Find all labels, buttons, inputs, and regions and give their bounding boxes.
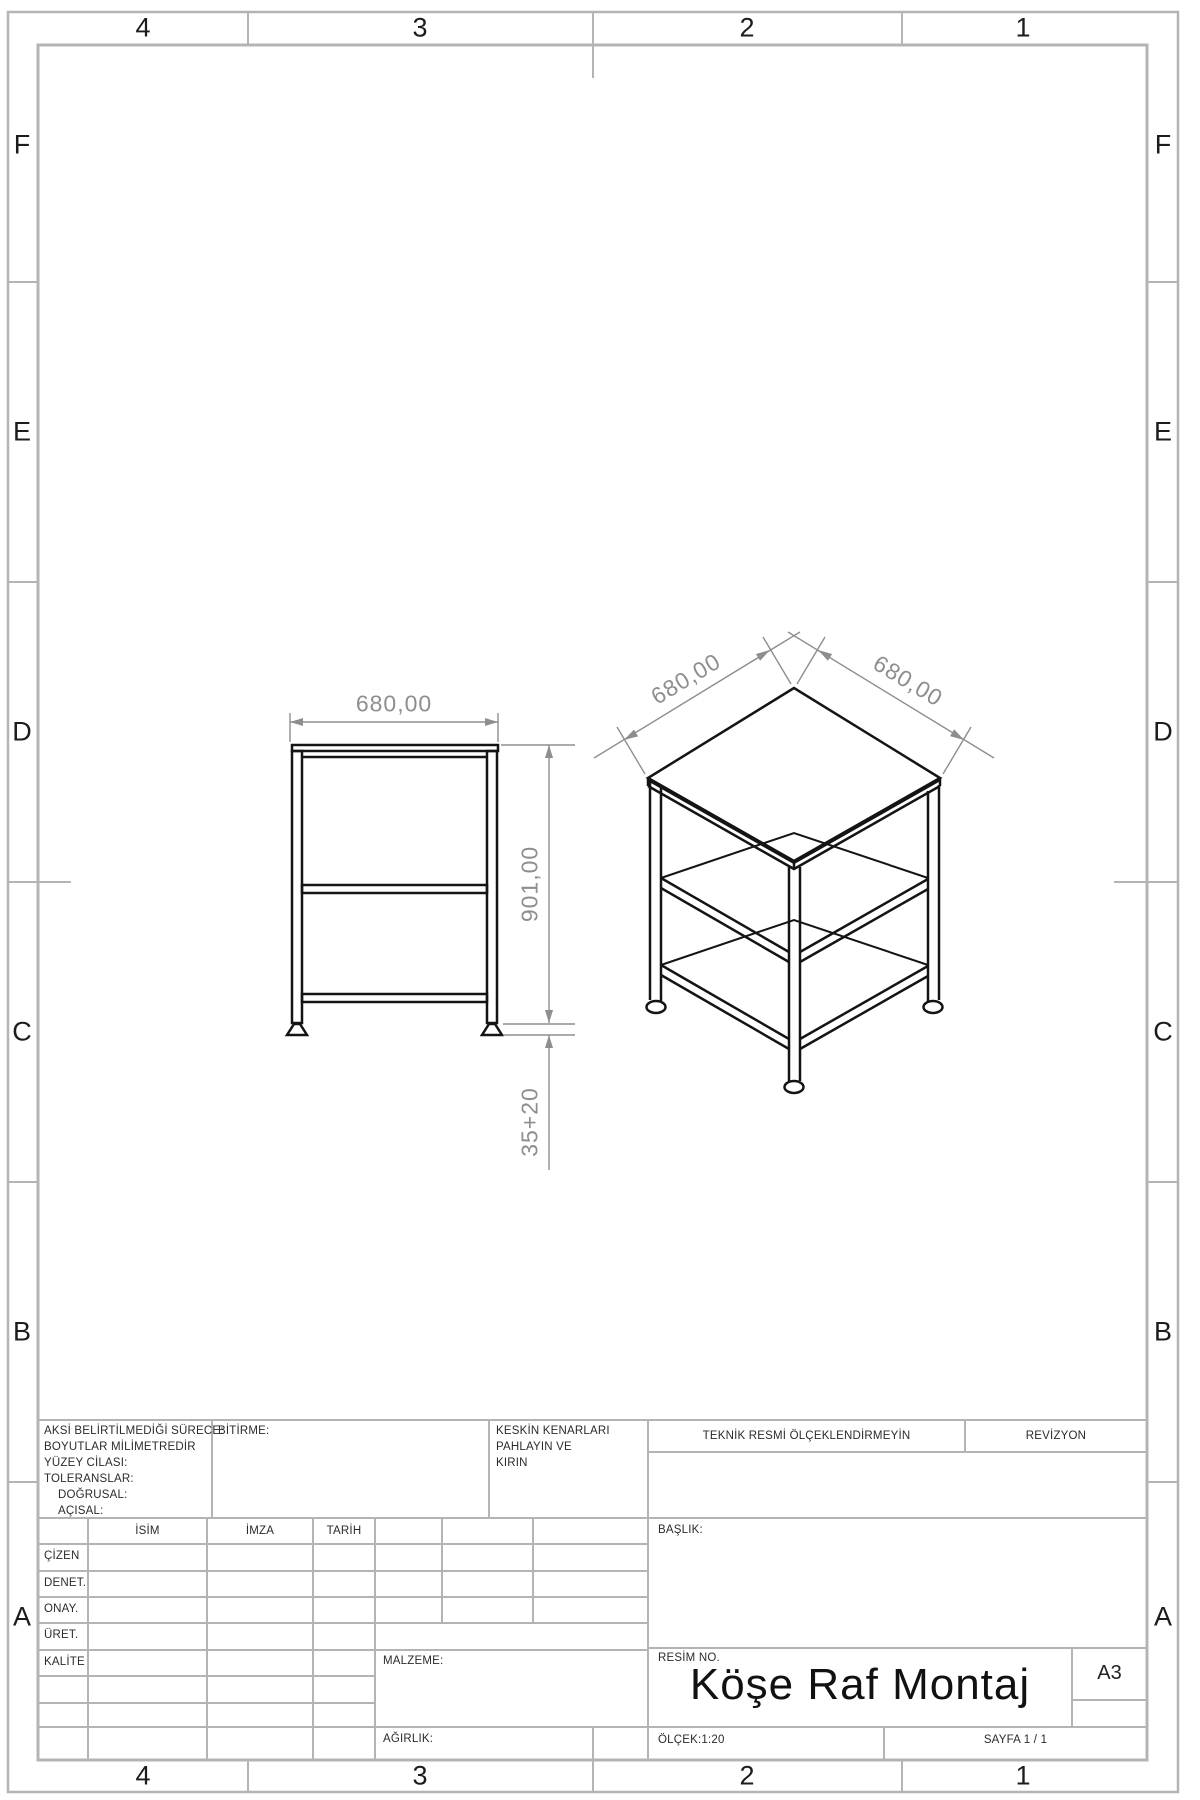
do-not-scale-note: TEKNİK RESMİ ÖLÇEKLENDİRMEYİN <box>648 1430 965 1442</box>
tolerance-note: YÜZEY CİLASI: <box>44 1457 128 1469</box>
sheet-number-label: SAYFA 1 / 1 <box>884 1734 1147 1746</box>
approval-row-label: DENET. <box>44 1577 86 1589</box>
approval-row-label: ÜRET. <box>44 1629 78 1641</box>
zone-row-label: B <box>13 1317 31 1348</box>
tolerance-note: DOĞRUSAL: <box>58 1489 128 1501</box>
tolerance-note: BOYUTLAR MİLİMETREDİR <box>44 1441 196 1453</box>
zone-col-label: 4 <box>135 13 150 44</box>
signature-header: İMZA <box>207 1525 313 1537</box>
zone-row-label: A <box>1154 1602 1172 1633</box>
zone-row-label: C <box>12 1017 32 1048</box>
zone-col-label: 3 <box>412 13 427 44</box>
zone-col-label: 3 <box>412 1761 427 1792</box>
finish-label: BİTİRME: <box>218 1425 269 1437</box>
edges-note: PAHLAYIN VE <box>496 1441 572 1453</box>
tolerance-note: TOLERANSLAR: <box>44 1473 134 1485</box>
front-height-dimension: 901,00 <box>517 846 544 922</box>
drawing-sheet: { "zones": { "columns": ["4", "3", "2", … <box>0 0 1200 1800</box>
zone-row-label: D <box>12 717 32 748</box>
zone-col-label: 2 <box>739 1761 754 1792</box>
date-header: TARİH <box>313 1525 375 1537</box>
approval-row-label: ONAY. <box>44 1603 78 1615</box>
edges-note: KESKİN KENARLARI <box>496 1425 610 1437</box>
approval-row-label: KALİTE <box>44 1656 85 1668</box>
zone-row-label: C <box>1153 1017 1173 1048</box>
weight-label: AĞIRLIK: <box>383 1733 433 1745</box>
material-label: MALZEME: <box>383 1655 443 1667</box>
front-view-dimension-arrows <box>290 718 553 1048</box>
title-label: BAŞLIK: <box>658 1524 703 1536</box>
name-header: İSİM <box>88 1525 207 1537</box>
zone-row-label: E <box>13 417 31 448</box>
drawing-title: Köşe Raf Montaj <box>648 1660 1072 1722</box>
iso-view-edges <box>647 688 943 1093</box>
zone-col-label: 4 <box>135 1761 150 1792</box>
front-width-dimension: 680,00 <box>356 691 432 718</box>
zone-row-label: F <box>1155 130 1172 161</box>
zone-row-label: F <box>14 130 31 161</box>
tolerance-note: AÇISAL: <box>58 1505 104 1517</box>
scale-label: ÖLÇEK:1:20 <box>658 1734 725 1746</box>
edges-note: KIRIN <box>496 1457 528 1469</box>
tolerance-note: AKSİ BELİRTİLMEDİĞİ SÜRECE: <box>44 1425 224 1437</box>
zone-col-label: 2 <box>739 13 754 44</box>
zone-row-label: E <box>1154 417 1172 448</box>
paper-size-badge: A3 <box>1072 1662 1147 1685</box>
zone-col-label: 1 <box>1015 1761 1030 1792</box>
front-foot-dimension: 35+20 <box>517 1087 544 1157</box>
zone-col-label: 1 <box>1015 13 1030 44</box>
zone-row-label: A <box>13 1602 31 1633</box>
front-view-edges <box>287 745 502 1035</box>
zone-row-label: B <box>1154 1317 1172 1348</box>
approval-row-label: ÇİZEN <box>44 1550 80 1562</box>
zone-row-label: D <box>1153 717 1173 748</box>
revision-label: REVİZYON <box>965 1430 1147 1442</box>
